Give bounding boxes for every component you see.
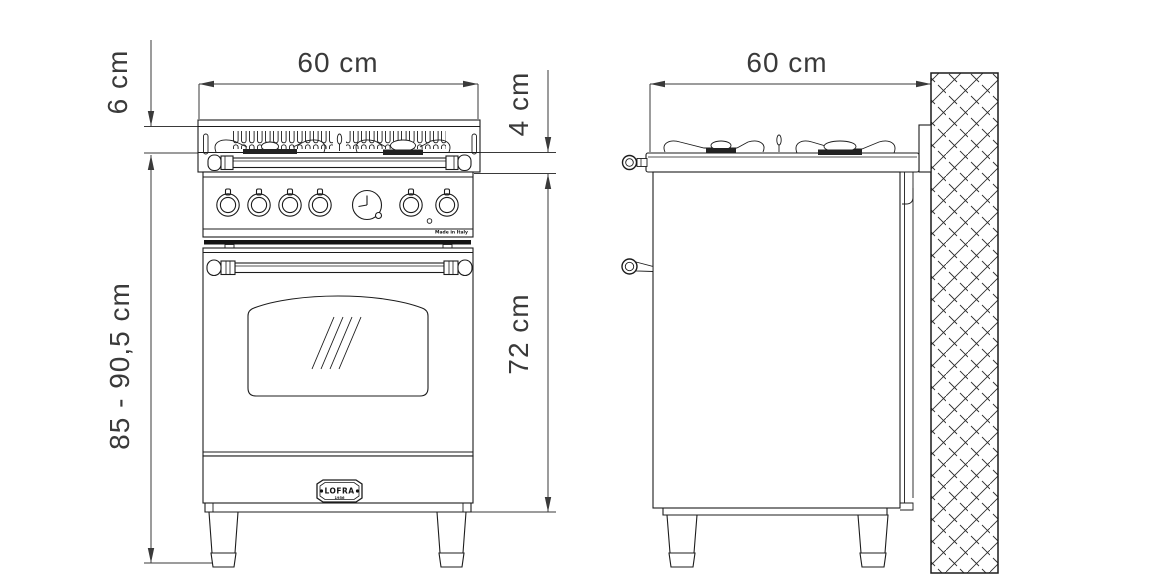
dim-front-width <box>199 81 478 119</box>
side-depth-label: 60 cm <box>746 47 827 78</box>
control-panel: Made in Italy <box>203 172 473 237</box>
worktop-thickness-label: 4 cm <box>503 72 534 137</box>
leg <box>437 512 466 567</box>
leg <box>667 515 697 567</box>
burner-cap-band <box>243 149 297 154</box>
badge-brand-text: LOFRA <box>324 487 354 496</box>
wall-trim-block <box>919 125 931 172</box>
arrowhead-down-icon <box>545 137 551 152</box>
badge-screw <box>356 489 359 492</box>
side-body-panel <box>653 172 913 510</box>
arrowhead-down-icon <box>545 497 551 512</box>
arrowhead-left-icon <box>199 81 214 87</box>
leg <box>209 512 238 567</box>
leg-foot <box>860 553 886 567</box>
igniter-pin-side <box>777 135 781 152</box>
leg-foot <box>669 553 695 567</box>
front-base-and-legs <box>203 503 473 567</box>
handle-collar <box>221 261 235 275</box>
oven-handle-side-end <box>622 259 653 274</box>
wall-section <box>919 73 998 573</box>
body-height-label: 72 cm <box>503 293 534 374</box>
side-base-and-legs <box>653 508 900 567</box>
arrowhead-down-icon <box>148 111 154 126</box>
front-view: Made in Italy <box>198 120 480 567</box>
badge-screw <box>320 489 323 492</box>
towel-rail-collar <box>221 156 233 170</box>
arrowhead-right-icon <box>916 81 931 87</box>
side-view <box>622 73 998 573</box>
towel-rail-end-cap <box>458 155 471 171</box>
arrowhead-left-icon <box>650 81 665 87</box>
leg-foot <box>439 553 464 567</box>
arrowhead-up-icon <box>545 174 551 189</box>
handle-collar <box>444 261 458 275</box>
made-in-italy-microtext: Made in Italy <box>435 230 468 236</box>
total-height-label: 85 - 90,5 cm <box>104 282 135 450</box>
hob-rim-height-label: 6 cm <box>102 50 133 115</box>
burner-cap-dome <box>391 140 416 151</box>
gas-connection-elbow <box>902 188 913 204</box>
technical-drawing-canvas: 60 cm 6 cm 85 - 90,5 cm 4 cm 72 cm 60 cm <box>0 0 1152 581</box>
arrowhead-down-icon <box>148 548 154 563</box>
dim-hob-rim-height <box>144 40 200 127</box>
leg <box>858 515 888 567</box>
arrowhead-right-icon <box>463 81 478 87</box>
storage-drawer-panel: LOFRA 1956 <box>203 456 473 503</box>
towel-rail-end-cap <box>208 155 221 171</box>
side-worktop <box>646 153 919 172</box>
burner-cap-band <box>818 150 862 156</box>
handle-end-cap <box>458 260 472 276</box>
handle-end-cap <box>207 260 221 276</box>
burner-cap-band <box>383 150 423 156</box>
burner-cap-band <box>706 148 736 153</box>
range-cooker-dimension-diagram: 60 cm 6 cm 85 - 90,5 cm 4 cm 72 cm 60 cm <box>0 0 1152 581</box>
badge-year-text: 1956 <box>334 496 345 500</box>
side-burners <box>664 135 895 155</box>
towel-rail-collar <box>446 156 458 170</box>
oven-door <box>203 248 473 456</box>
burner-left-side <box>664 141 764 153</box>
leg-foot <box>211 553 236 567</box>
front-width-label: 60 cm <box>297 47 378 78</box>
towel-rail-side-end <box>623 156 648 170</box>
brand-badge: LOFRA 1956 <box>317 480 362 502</box>
hob-top-front <box>198 120 480 172</box>
arrowhead-up-icon <box>148 155 154 170</box>
